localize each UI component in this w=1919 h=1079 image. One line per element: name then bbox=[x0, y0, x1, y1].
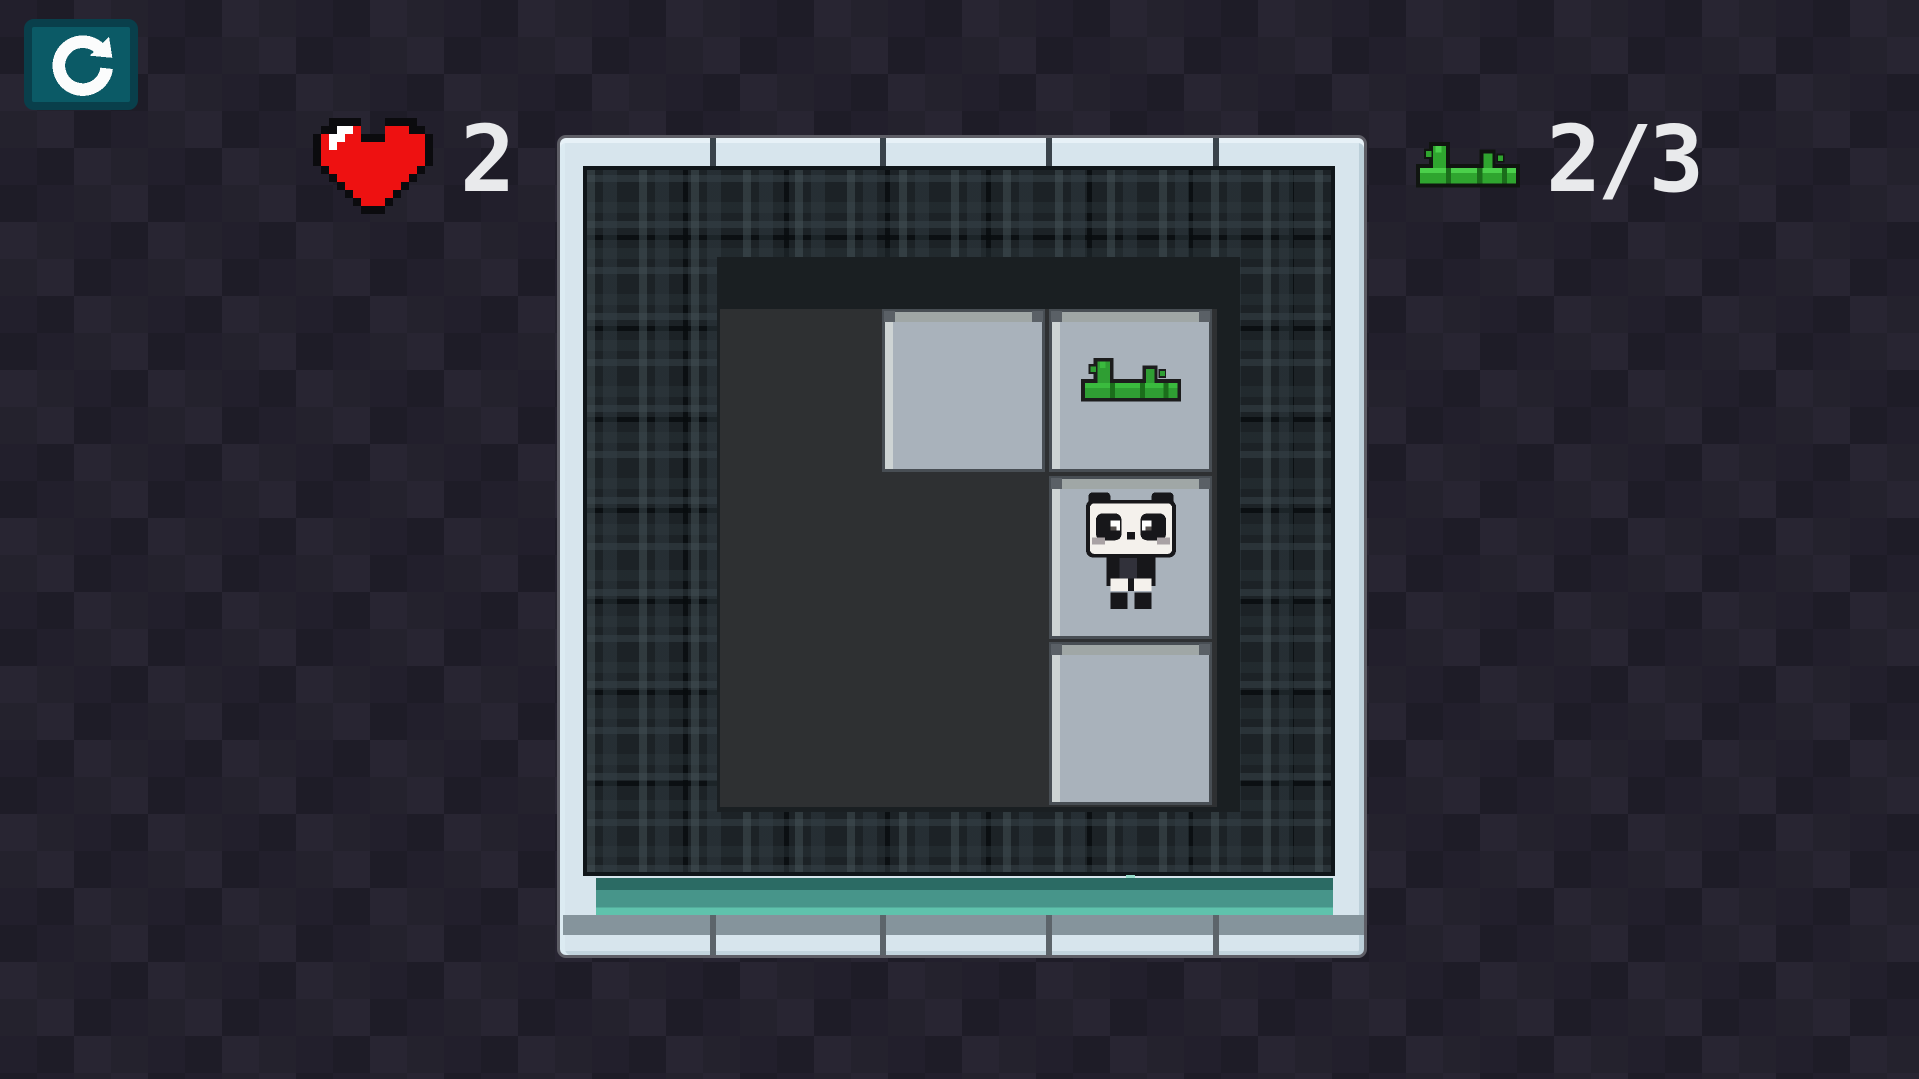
play-area bbox=[717, 257, 1240, 812]
frame-separator bbox=[1213, 138, 1219, 168]
bamboo-icon bbox=[1416, 138, 1520, 190]
floor-tile bbox=[882, 309, 1045, 472]
floor-tile bbox=[1049, 309, 1212, 472]
teal-status-bar bbox=[596, 878, 1333, 915]
restart-icon bbox=[48, 32, 114, 98]
floor-tile bbox=[1049, 642, 1212, 805]
frame-separator bbox=[1046, 915, 1052, 958]
lives-count: 2 bbox=[460, 112, 511, 208]
bottom-band bbox=[563, 915, 1367, 935]
bamboo-counter: 2/3 bbox=[1416, 112, 1700, 208]
lives-counter: 2 bbox=[312, 112, 511, 218]
frame-separator bbox=[880, 915, 886, 958]
panda-player bbox=[1083, 489, 1179, 619]
frame-separator bbox=[880, 138, 886, 168]
heart-icon bbox=[312, 118, 434, 218]
bamboo-count: 2/3 bbox=[1546, 112, 1700, 208]
floor-tile bbox=[1049, 476, 1212, 639]
restart-button[interactable] bbox=[24, 19, 138, 110]
frame-separator bbox=[1213, 915, 1219, 958]
bamboo-item bbox=[1081, 354, 1181, 404]
frame-separator bbox=[710, 915, 716, 958]
game-stage: 2 2/3 bbox=[0, 0, 1919, 1079]
game-board bbox=[557, 135, 1367, 958]
frame-separator bbox=[710, 138, 716, 168]
frame-separator bbox=[1046, 138, 1052, 168]
circuit-frame bbox=[583, 166, 1335, 876]
